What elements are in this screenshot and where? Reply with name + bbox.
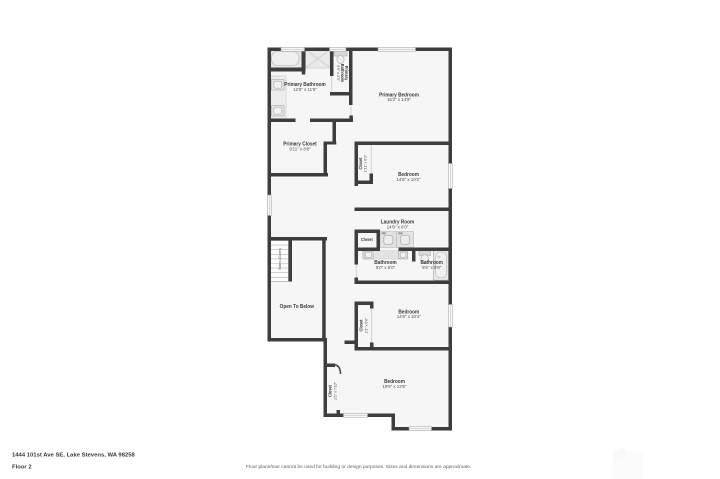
svg-text:14'6" x 10'4": 14'6" x 10'4" bbox=[397, 314, 422, 319]
svg-text:9'0" x 5'0": 9'0" x 5'0" bbox=[376, 265, 396, 270]
svg-text:Closet: Closet bbox=[361, 236, 373, 241]
svg-text:Stairs (Down): Stairs (Down) bbox=[278, 248, 282, 270]
svg-text:Closet: Closet bbox=[358, 157, 363, 169]
svg-text:1444 101st Ave SE, Lake Steven: 1444 101st Ave SE, Lake Stevens, WA 9825… bbox=[12, 453, 136, 459]
svg-text:19'9" x 13'5": 19'9" x 13'5" bbox=[382, 384, 407, 389]
svg-text:5'5" x 9'9": 5'5" x 9'9" bbox=[422, 265, 442, 270]
svg-text:2'1" x 6'0": 2'1" x 6'0" bbox=[364, 317, 368, 333]
svg-text:Closet: Closet bbox=[358, 319, 363, 331]
svg-text:Floor plans/tour cannot be use: Floor plans/tour cannot be used for buil… bbox=[246, 464, 471, 470]
svg-text:Closet: Closet bbox=[327, 385, 332, 397]
svg-text:15'2" x 14'9": 15'2" x 14'9" bbox=[387, 97, 412, 102]
svg-text:1'11" x 6'3": 1'11" x 6'3" bbox=[364, 154, 368, 172]
svg-text:Floor 2: Floor 2 bbox=[12, 465, 32, 471]
svg-text:Open To Below: Open To Below bbox=[280, 304, 315, 310]
svg-text:14'6" x 6'0": 14'6" x 6'0" bbox=[387, 225, 409, 230]
svg-text:14'6" x 10'2": 14'6" x 10'2" bbox=[396, 177, 421, 182]
svg-text:2'1" x 7'10": 2'1" x 7'10" bbox=[333, 381, 337, 399]
svg-text:12'9" x 11'6": 12'9" x 11'6" bbox=[293, 87, 317, 92]
svg-text:9'11" x 8'8": 9'11" x 8'8" bbox=[289, 146, 311, 151]
svg-text:5'9" x 3'3": 5'9" x 3'3" bbox=[336, 65, 340, 81]
